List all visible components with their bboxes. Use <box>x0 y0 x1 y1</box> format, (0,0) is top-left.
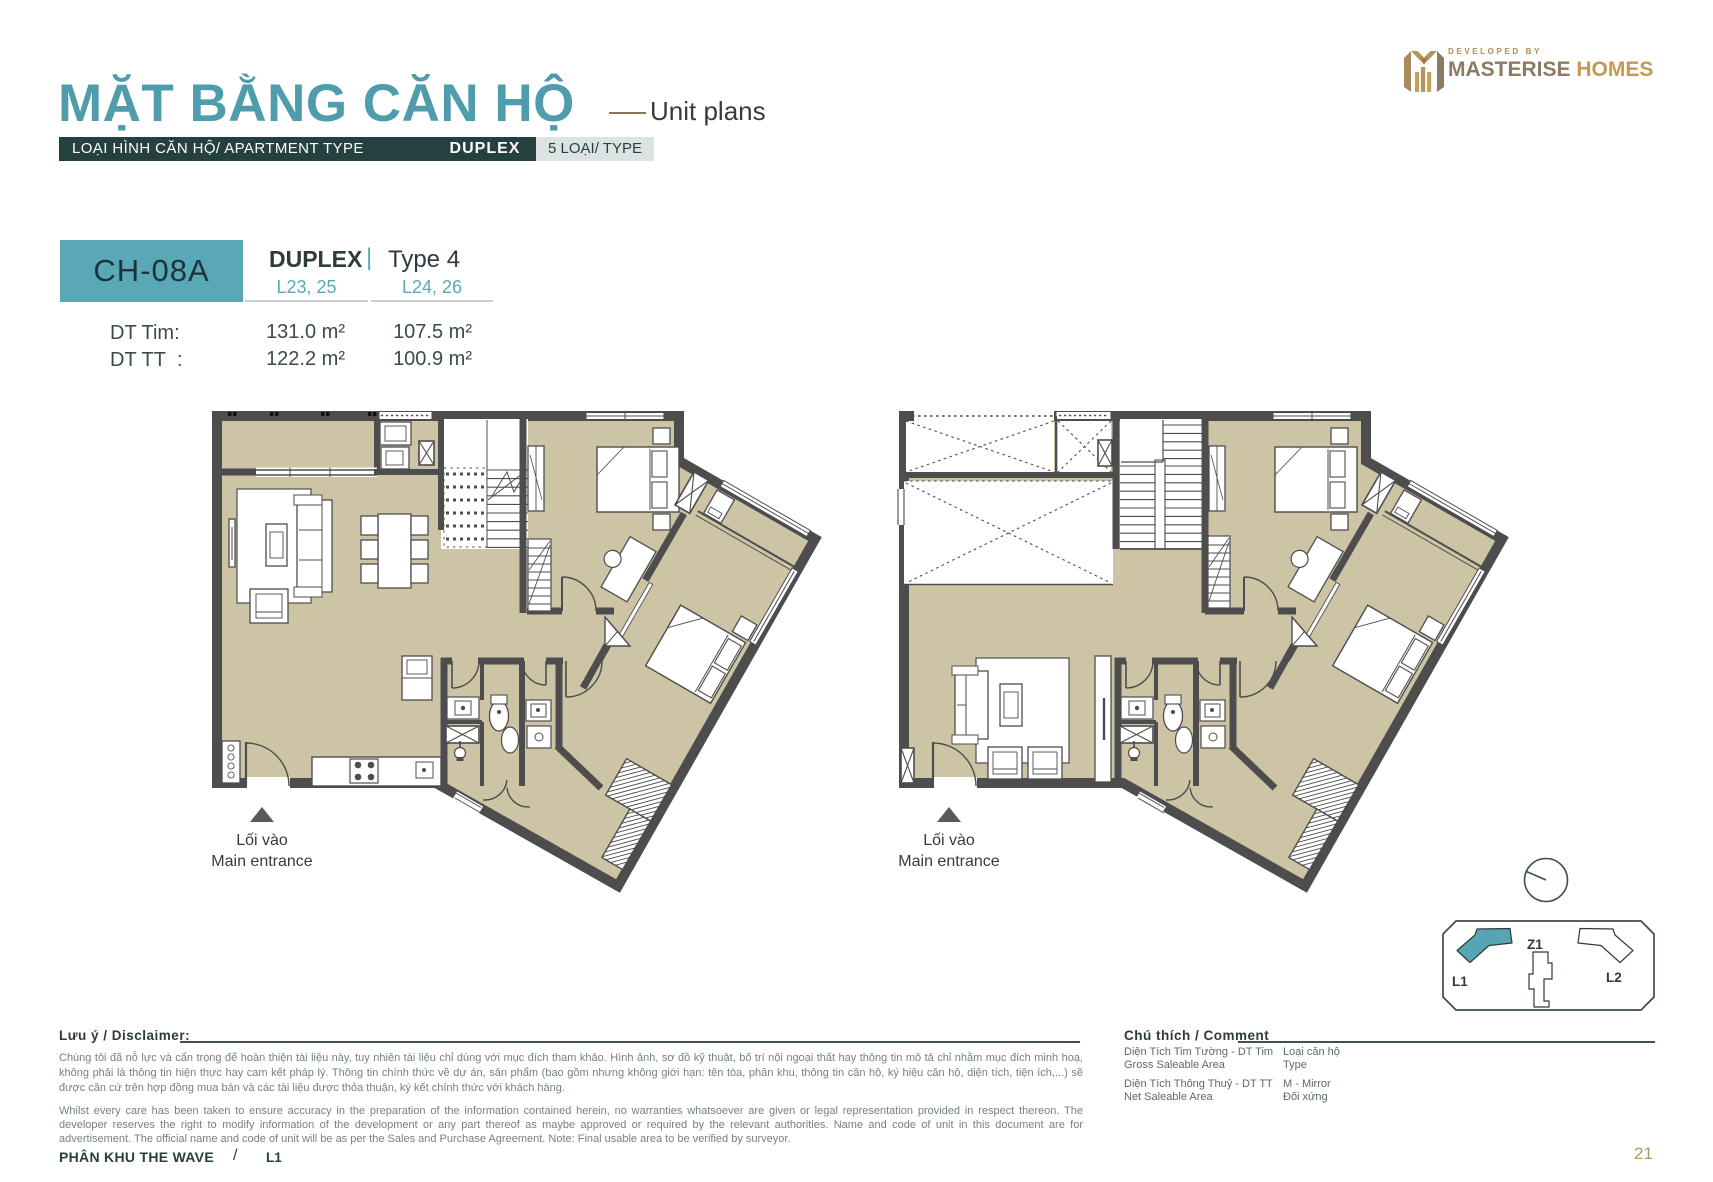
svg-text:Lối vào: Lối vào <box>923 832 975 849</box>
svg-text:L1: L1 <box>1452 974 1468 989</box>
svg-text:Main entrance: Main entrance <box>211 853 312 870</box>
svg-text:MASTERISE HOMES: MASTERISE HOMES <box>1448 58 1653 81</box>
svg-text:Main entrance: Main entrance <box>898 853 999 870</box>
svg-text:Z1: Z1 <box>1527 937 1543 952</box>
svg-text:Lối vào: Lối vào <box>236 832 288 849</box>
svg-text:L2: L2 <box>1606 970 1622 985</box>
svg-text:DEVELOPED BY: DEVELOPED BY <box>1448 47 1542 56</box>
